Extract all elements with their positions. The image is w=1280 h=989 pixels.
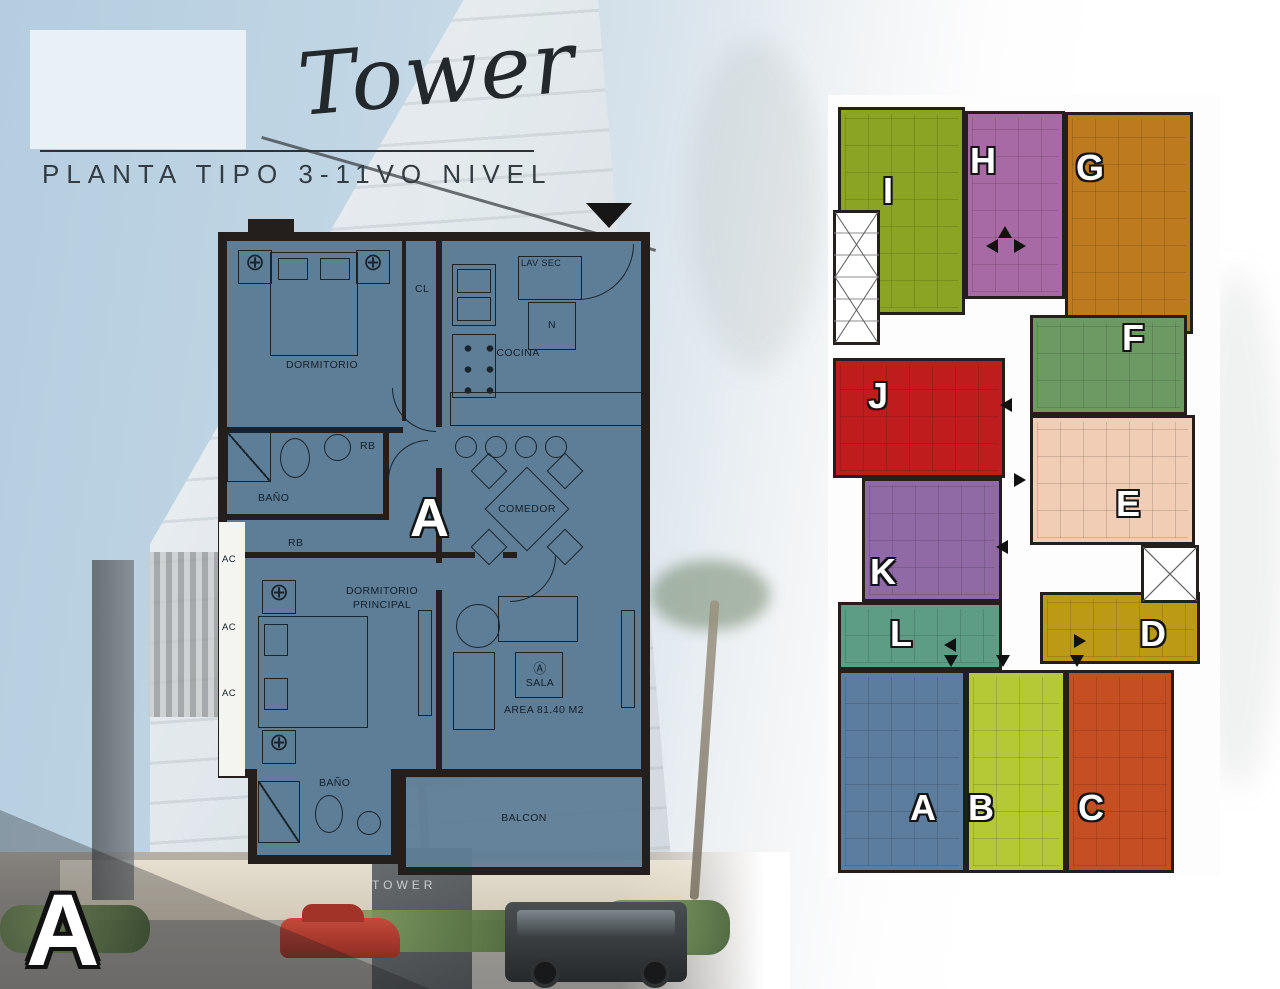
sink-basin xyxy=(457,297,491,321)
unit-letter: I xyxy=(883,170,893,212)
direction-arrow-icon xyxy=(1014,473,1026,487)
logo-placeholder xyxy=(30,30,246,149)
area-label: AREA 81.40 M2 xyxy=(504,704,584,716)
corner-unit-letter: A xyxy=(26,872,100,989)
wall xyxy=(436,590,442,769)
nightstand: ⊕ xyxy=(262,580,296,614)
wall xyxy=(245,552,475,558)
keyplan-unit-a xyxy=(838,670,966,873)
door-arc xyxy=(392,388,436,432)
sofa xyxy=(498,596,578,642)
bar-stool xyxy=(515,436,537,458)
unit-a-bathroom2: BAÑO xyxy=(248,769,400,864)
room-label-rb: RB xyxy=(360,440,375,452)
tv-console xyxy=(418,610,432,716)
keyplan-unit-f xyxy=(1030,315,1187,415)
ac-label: AC xyxy=(222,554,236,565)
pillow xyxy=(264,624,288,656)
wall xyxy=(436,241,442,427)
side-table xyxy=(456,604,500,648)
shower xyxy=(227,432,271,482)
bar-stool xyxy=(455,436,477,458)
direction-arrow-icon xyxy=(1070,655,1084,667)
unit-letter: G xyxy=(1076,147,1104,189)
kitchen-counter xyxy=(450,392,642,426)
floor-subtitle: PLANTA TIPO 3-11VO NIVEL xyxy=(42,159,552,190)
door-arc xyxy=(578,244,634,300)
suv-wheel xyxy=(530,958,560,988)
direction-arrow-icon xyxy=(944,655,958,667)
room-label-rb: RB xyxy=(288,537,303,549)
keyplan-unit-g xyxy=(1065,112,1193,334)
unit-letter: F xyxy=(1122,317,1144,359)
room-label-cl: CL xyxy=(415,283,429,295)
room-label-cocina: COCINA xyxy=(482,347,554,359)
keyplan-unit-l xyxy=(838,602,1002,670)
pillow xyxy=(320,258,350,280)
palm-shadow-top xyxy=(690,40,820,370)
shower xyxy=(258,781,300,843)
metal-gate xyxy=(148,552,218,717)
coffee-table: Ⓐ SALA xyxy=(515,652,563,698)
toilet xyxy=(315,795,343,833)
room-label-dormitorio-principal: DORMITORIO xyxy=(322,585,442,597)
unit-letter-marker: A xyxy=(410,487,449,549)
pillow xyxy=(264,678,288,710)
toilet xyxy=(280,438,310,478)
room-label-bano: BAÑO xyxy=(258,492,289,504)
loveseat xyxy=(453,652,495,730)
keyplan-unit-c xyxy=(1066,670,1174,873)
tv-console xyxy=(621,610,635,708)
nightstand: ⊕ xyxy=(262,730,296,764)
unit-letter: J xyxy=(868,375,888,417)
unit-letter: D xyxy=(1140,613,1166,655)
dining-chair xyxy=(471,529,508,566)
door-arc xyxy=(388,440,428,480)
unit-letter: C xyxy=(1078,787,1104,829)
room-label-bano: BAÑO xyxy=(319,777,350,789)
unit-letter: L xyxy=(890,613,912,655)
suv-wheel xyxy=(640,958,670,988)
dining-chair xyxy=(547,453,584,490)
nightstand: ⊕ xyxy=(356,250,390,284)
fixture-icon: ⊕ xyxy=(363,249,383,276)
unit-letter: K xyxy=(870,551,896,593)
unit-a-floorplan: ⊕ ⊕ DORMITORIO CL LAV SEC N COCINA BAÑO … xyxy=(218,232,650,778)
wall xyxy=(227,514,389,520)
unit-a-balcony: BALCON xyxy=(398,769,650,875)
room-label-comedor: COMEDOR xyxy=(487,503,567,515)
direction-arrow-icon xyxy=(1000,398,1012,412)
direction-arrow-icon xyxy=(1074,634,1086,648)
unit-letter: A xyxy=(910,787,936,829)
ac-label: AC xyxy=(222,622,236,633)
entrance-column xyxy=(92,560,134,900)
ac-strip: AC AC AC xyxy=(219,522,245,776)
keyplan-unit-b xyxy=(966,670,1066,873)
stairs-icon xyxy=(833,210,880,345)
sink-basin xyxy=(457,269,491,293)
stove-burners xyxy=(452,334,496,398)
unit-letter: H xyxy=(970,140,996,182)
ac-label: AC xyxy=(222,688,236,699)
room-label-balcon: BALCON xyxy=(489,812,559,824)
direction-arrow-icon xyxy=(998,226,1012,238)
direction-arrow-icon xyxy=(996,655,1010,667)
keyplan-unit-j xyxy=(833,358,1005,478)
fixture-icon: ⊕ xyxy=(269,729,289,756)
bathroom-sink xyxy=(324,434,351,461)
direction-arrow-icon xyxy=(986,239,998,253)
building-sign-text: TOWER xyxy=(372,878,436,892)
room-label-sala: SALA xyxy=(516,677,564,689)
room-label-nevera: N xyxy=(528,319,576,331)
direction-arrow-icon xyxy=(996,540,1008,554)
nightstand: ⊕ xyxy=(238,250,272,284)
flyer-canvas: TOWER Tower PLANTA TIPO 3-11VO NIVEL ⊕ ⊕ xyxy=(0,0,1280,989)
dining-chair xyxy=(471,453,508,490)
elevator-icon xyxy=(1141,545,1199,603)
bathroom-sink xyxy=(357,811,381,835)
entrance-arrow-icon xyxy=(586,203,632,228)
fixture-icon: ⊕ xyxy=(269,579,289,606)
unit-letter: B xyxy=(968,787,994,829)
pillow xyxy=(278,258,308,280)
fixture-icon: ⊕ xyxy=(245,249,265,276)
direction-arrow-icon xyxy=(944,638,956,652)
sala-marker-icon: Ⓐ xyxy=(516,658,564,677)
direction-arrow-icon xyxy=(1014,239,1026,253)
building-key-plan: I H G F J E K L D A B C xyxy=(828,95,1220,877)
title-divider xyxy=(40,150,534,152)
room-label-lav-sec: LAV SEC xyxy=(521,258,561,268)
room-label-dormitorio: DORMITORIO xyxy=(262,359,382,371)
keyplan-unit-e xyxy=(1030,415,1195,545)
unit-letter: E xyxy=(1116,483,1140,525)
